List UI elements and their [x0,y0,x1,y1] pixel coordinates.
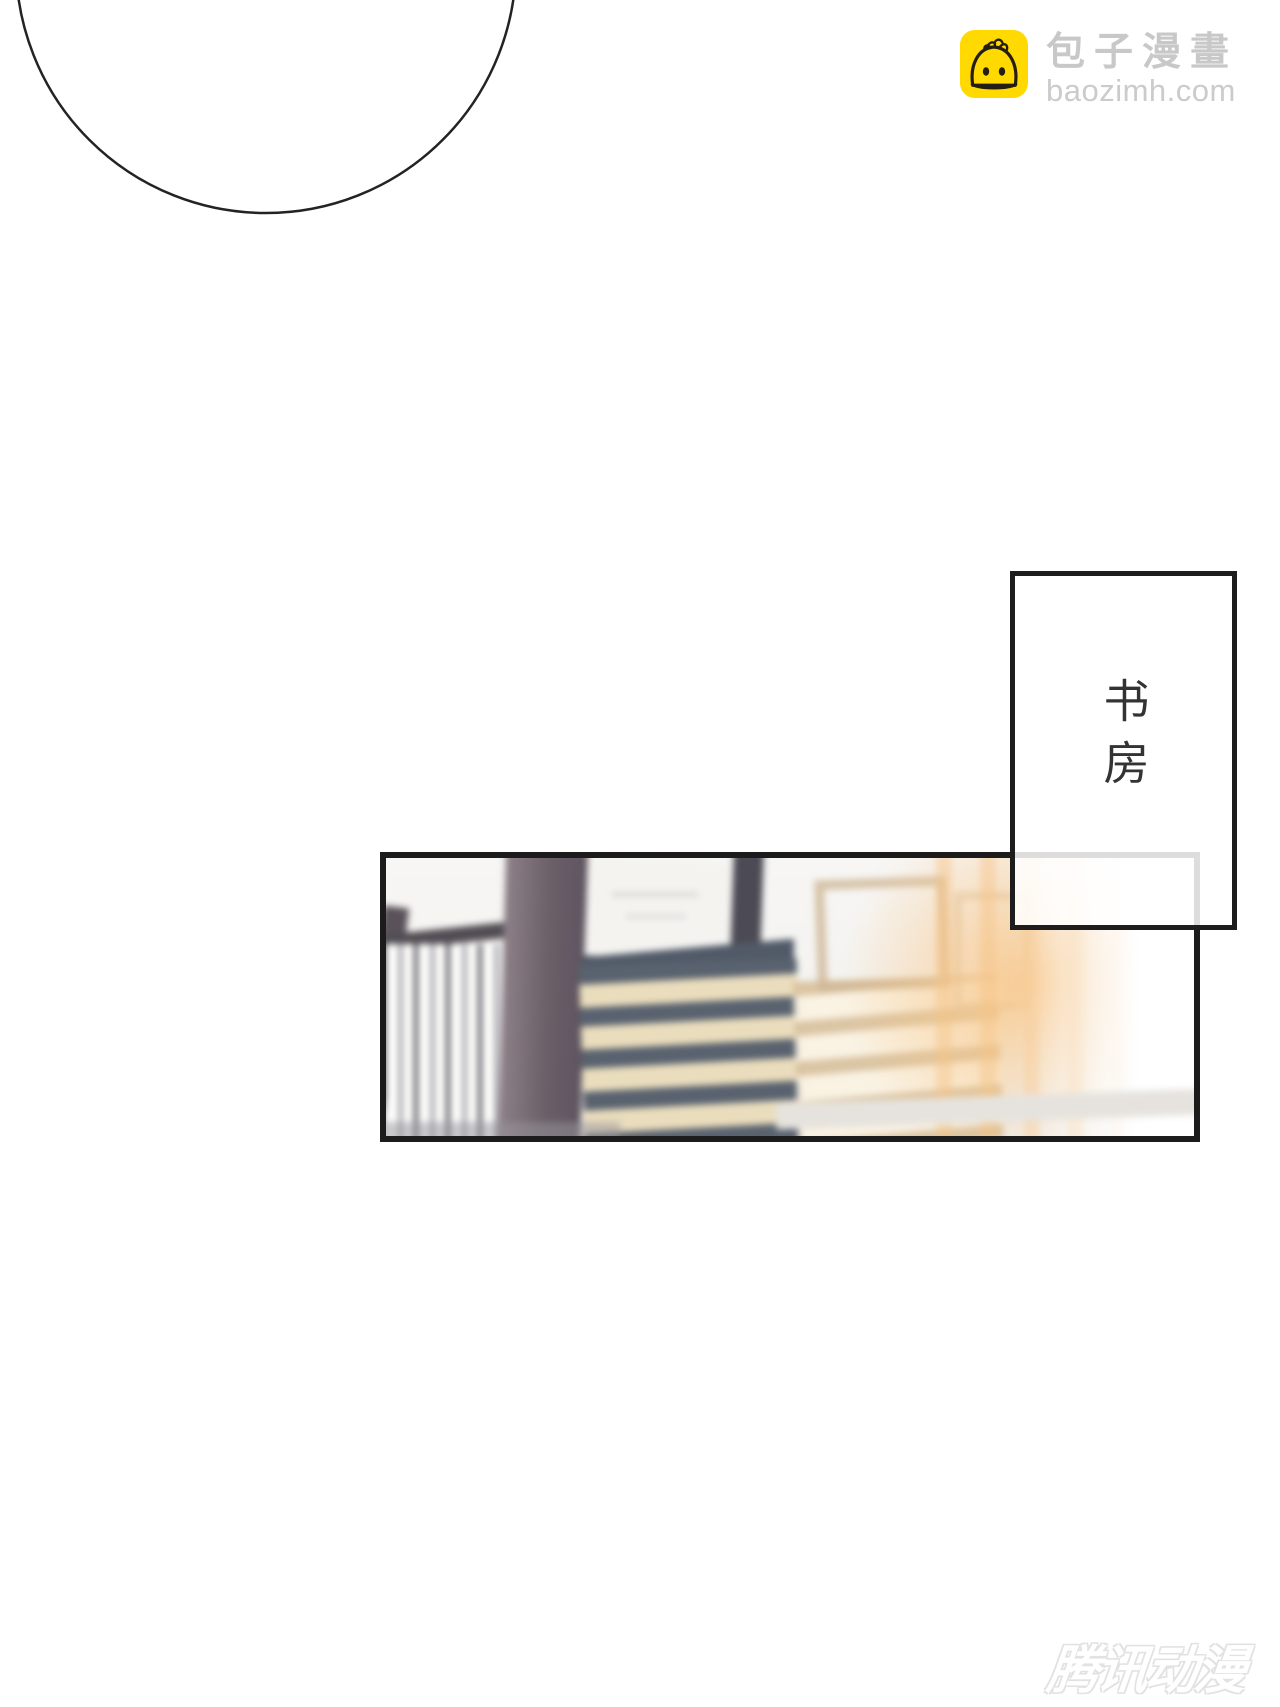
site-domain: baozimh.com [1046,74,1236,108]
vertical-book-spines [386,944,508,1142]
speech-bubble-outline [0,0,560,224]
shelf-floor-edge [380,1122,620,1142]
book-stack-center [579,958,804,1142]
tencent-comics-watermark: 腾讯动漫 [1044,1628,1272,1703]
site-branding: 包子漫畫 baozimh.com [960,28,1260,110]
pane-mark [612,892,698,897]
site-name: 包子漫畫 [1046,32,1238,74]
location-caption-text: 书房 [1091,677,1157,801]
comic-page: 包子漫畫 baozimh.com [0,0,1280,1707]
baozi-bun-icon [960,30,1028,98]
wooden-post [498,852,588,1142]
location-caption-box: 书房 [1010,571,1237,930]
pane-mark [626,914,686,919]
